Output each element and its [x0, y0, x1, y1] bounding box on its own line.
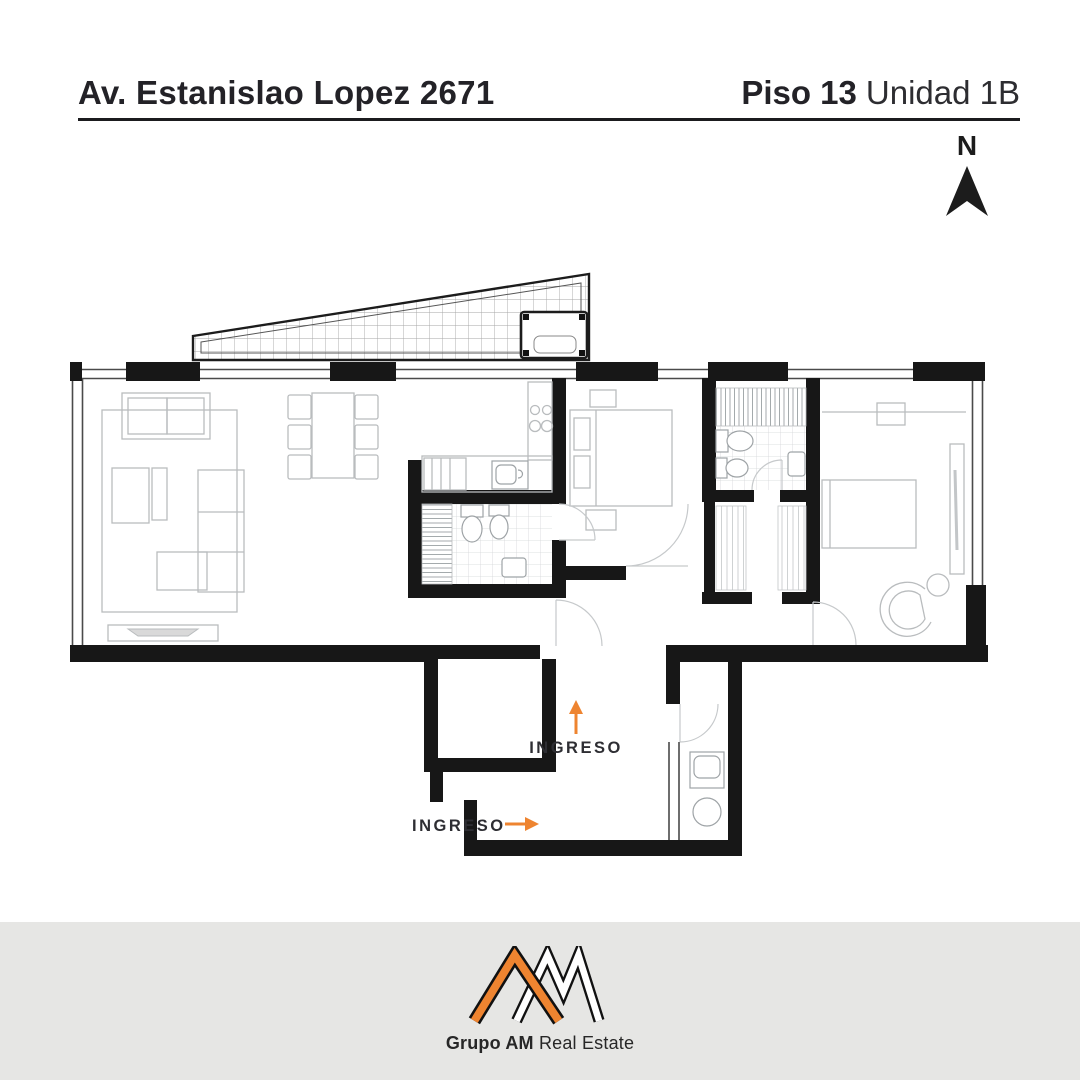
poster: Av. Estanislao Lopez 2671 Piso 13Unidad … — [0, 0, 1080, 1080]
bidet — [489, 505, 509, 539]
parrilla-box — [521, 312, 587, 358]
brand-regular: Real Estate — [539, 1033, 634, 1053]
right-arrow-icon — [525, 817, 539, 831]
ingreso-label-2: INGRESO — [412, 817, 506, 835]
bedroom-2 — [822, 403, 966, 636]
living-room-furniture — [102, 393, 378, 641]
north-arrow-icon: N — [946, 130, 988, 216]
dressing — [716, 506, 806, 590]
toilet — [461, 505, 483, 542]
entrance-2: INGRESO — [412, 817, 539, 835]
armchair — [880, 574, 949, 636]
dining-set — [288, 393, 378, 479]
brand-bold: Grupo AM — [446, 1033, 534, 1053]
bedroom-1 — [570, 390, 672, 530]
north-label: N — [957, 130, 977, 161]
bathroom-1 — [422, 504, 552, 584]
laundry — [690, 752, 724, 826]
am-monogram-logo — [465, 946, 615, 1030]
up-arrow-icon — [569, 700, 583, 714]
footer: Grupo AM Real Estate — [0, 922, 1080, 1080]
walls — [70, 362, 988, 856]
brand-caption: Grupo AM Real Estate — [446, 1033, 634, 1054]
bathroom-2 — [716, 388, 806, 490]
ingreso-label-1: INGRESO — [529, 739, 623, 757]
floor-plan: N — [0, 0, 1080, 1080]
terrace — [193, 274, 589, 360]
kitchen — [422, 382, 553, 492]
